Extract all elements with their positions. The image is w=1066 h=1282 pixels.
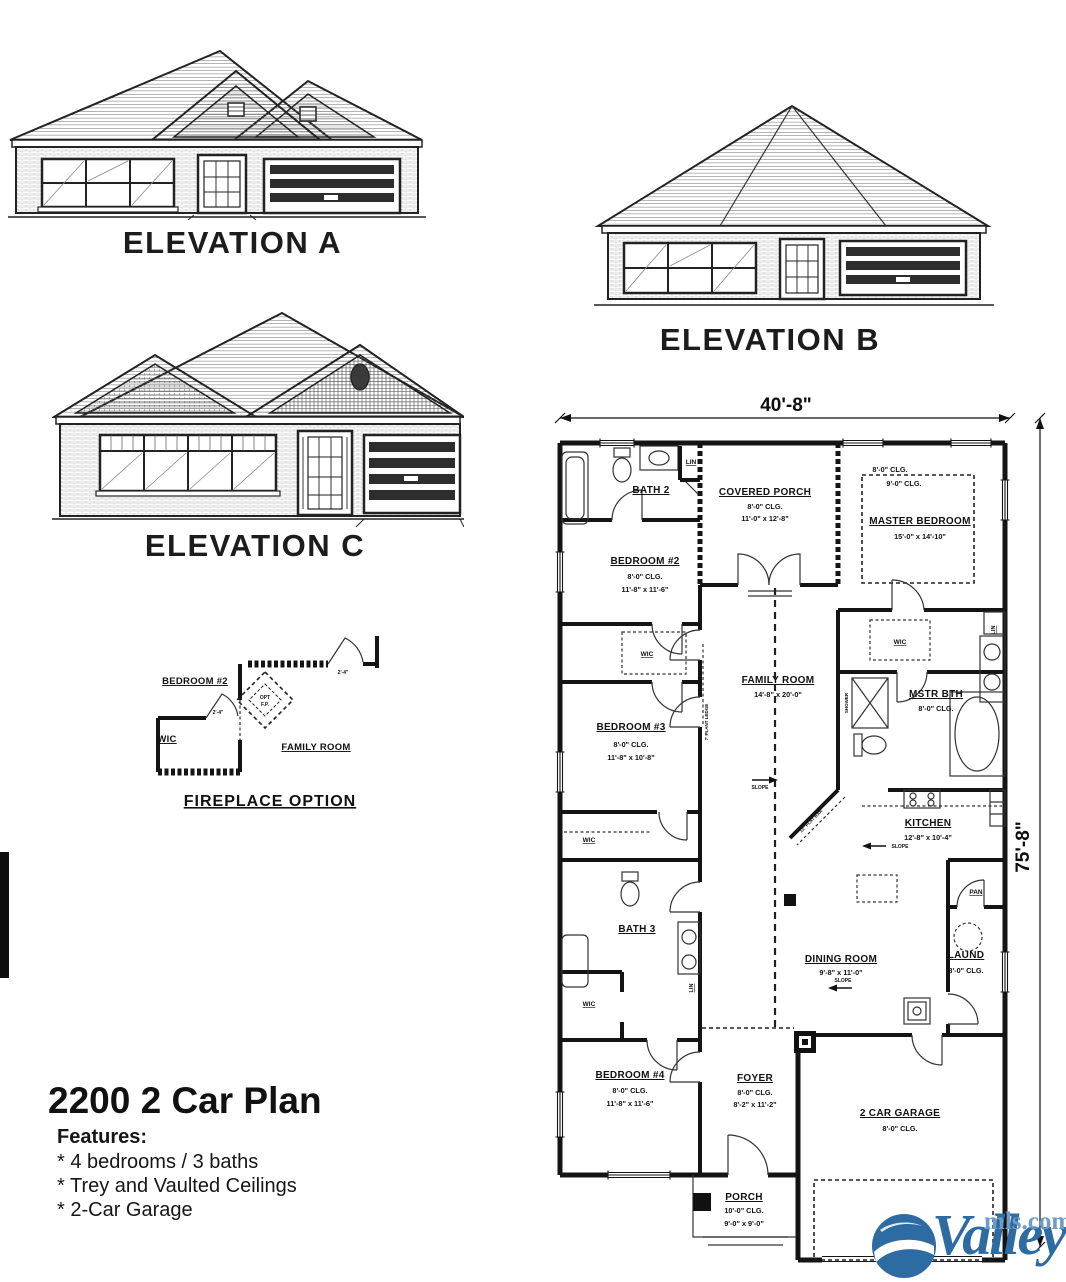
svg-text:2 CAR GARAGE: 2 CAR GARAGE (860, 1108, 940, 1119)
fireplace-option-detail: OPT F.P. 2'-4" 2'-4" BEDROOM #2 WIC FAMI… (148, 622, 383, 817)
shower-label: SHOWER (844, 692, 849, 713)
elevation-a-label: ELEVATION A (100, 225, 365, 261)
window (38, 159, 178, 212)
front-door (198, 155, 246, 213)
svg-text:8'-0" CLG.: 8'-0" CLG. (613, 740, 648, 749)
family-room-label: FAMILY ROOM 14'-8" x 20'-0" (742, 675, 815, 699)
svg-text:FAMILY ROOM: FAMILY ROOM (742, 675, 815, 686)
opt-fp-label-1: OPT (260, 695, 270, 701)
elevation-b-label: ELEVATION B (640, 322, 900, 358)
svg-text:14'-8" x 20'-0": 14'-8" x 20'-0" (754, 690, 802, 699)
svg-text:12'-8" x 10'-4": 12'-8" x 10'-4" (904, 833, 952, 842)
front-door (780, 239, 824, 299)
porch-post (693, 1193, 711, 1211)
feature-item: * 2-Car Garage (57, 1198, 193, 1222)
toilet (854, 734, 886, 756)
garage-door (264, 159, 400, 213)
width-dimension: 40'-8" (555, 395, 1015, 423)
flat-bar-label: 12" FLAT BAR (798, 808, 824, 834)
elevation-b-drawing (594, 100, 994, 310)
bathtub (562, 452, 588, 524)
kitchen-label: KITCHEN 12'-8" x 10'-4" (904, 818, 952, 842)
svg-text:8'-0" CLG.: 8'-0" CLG. (918, 704, 953, 713)
master-bedroom-label: 8'-0" CLG. 9'-0" CLG. MASTER BEDROOM 15'… (869, 465, 970, 541)
svg-text:8'-0" CLG.: 8'-0" CLG. (747, 502, 782, 511)
svg-text:8'-0" CLG.: 8'-0" CLG. (612, 1086, 647, 1095)
wic-label: WIC (583, 837, 596, 844)
svg-text:8'-0" CLG.: 8'-0" CLG. (872, 465, 907, 474)
opt-fireplace-diamond: OPT F.P. (237, 672, 293, 728)
bedroom4-label: BEDROOM #4 8'-0" CLG. 11'-8" x 11'-6" (595, 1070, 664, 1108)
svg-text:BEDROOM #3: BEDROOM #3 (596, 722, 665, 733)
window (1001, 480, 1010, 520)
valley-logo-globe-icon (870, 1212, 938, 1280)
garage-door (840, 241, 966, 295)
svg-text:SLOPE: SLOPE (892, 844, 910, 850)
svg-text:11'-8" x 11'-6": 11'-8" x 11'-6" (622, 585, 669, 594)
wic-label: WIC (641, 651, 654, 658)
garage-door (364, 435, 460, 513)
scan-artifact (0, 852, 9, 978)
window (556, 1092, 565, 1137)
svg-text:15'-0" x 14'-10": 15'-0" x 14'-10" (894, 532, 946, 541)
svg-text:LAUND: LAUND (948, 950, 985, 961)
bathtub (562, 935, 588, 987)
floor-plan-sheet: ELEVATION A (0, 0, 1066, 1282)
shower: SHOWER (844, 678, 888, 728)
fireplace-option-title: FIREPLACE OPTION (184, 793, 356, 810)
lin-label: LIN (991, 626, 997, 635)
lin-label: LIN (689, 984, 695, 993)
window (608, 1171, 670, 1180)
fireplace-wic-label: WIC (157, 734, 176, 745)
toilet (613, 448, 631, 482)
plant-ledge-label: 7' PLANT LEDGE (704, 704, 709, 741)
window (843, 439, 883, 448)
garage-label: 2 CAR GARAGE 8'-0" CLG. (860, 1108, 940, 1133)
svg-text:SLOPE: SLOPE (835, 978, 853, 984)
washer (904, 998, 930, 1024)
garden-tub (950, 692, 1005, 776)
window (1001, 952, 1010, 992)
foyer-label: FOYER 8'-0" CLG. 8'-2" x 11'-2" (733, 1073, 776, 1109)
slope-arrow: SLOPE (862, 843, 909, 851)
sink (640, 446, 678, 470)
laundry-label: LAUND 8'-0" CLG. (948, 950, 985, 975)
range (904, 790, 940, 808)
fireplace-family-room-label: FAMILY ROOM (281, 742, 350, 753)
elevation-c-label: ELEVATION C (115, 528, 395, 564)
fireplace-dim-left: 2'-4" (213, 710, 224, 716)
dining-room-label: DINING ROOM 9'-8" x 11'-0" (805, 954, 877, 977)
main-floor-plan: 40'-8" 75'-8" (552, 392, 1066, 1280)
svg-text:11'-8" x 11'-6": 11'-8" x 11'-6" (607, 1099, 654, 1108)
svg-text:MSTR BTH: MSTR BTH (909, 689, 963, 700)
svg-text:8'-0" CLG.: 8'-0" CLG. (882, 1124, 917, 1133)
front-door (298, 431, 352, 515)
wall-cap (784, 894, 796, 906)
window (556, 752, 565, 792)
elevation-a-drawing (8, 45, 426, 220)
lin-label: LIN (686, 459, 697, 466)
svg-text:COVERED PORCH: COVERED PORCH (719, 487, 811, 498)
bedroom2-label: BEDROOM #2 8'-0" CLG. 11'-8" x 11'-6" (610, 556, 679, 594)
fireplace-bedroom2-label: BEDROOM #2 (162, 676, 228, 687)
fireplace-dim-right: 2'-4" (338, 670, 349, 676)
svg-text:DINING ROOM: DINING ROOM (805, 954, 877, 965)
bedroom3-label: BEDROOM #3 8'-0" CLG. 11'-8" x 10'-8" (596, 722, 665, 762)
elevation-c-drawing (52, 305, 464, 527)
window (600, 439, 634, 448)
wic-label: WIC (583, 1001, 596, 1008)
mls-com-text: mls.com (984, 1208, 1066, 1236)
slope-arrow: SLOPE (828, 978, 852, 992)
svg-text:10'-0" CLG.: 10'-0" CLG. (724, 1206, 763, 1215)
mstr-bth-label: MSTR BTH 8'-0" CLG. (909, 689, 963, 713)
svg-text:11'-8" x 10'-8": 11'-8" x 10'-8" (607, 753, 654, 762)
double-vanity (678, 922, 700, 974)
window (951, 439, 991, 448)
height-dimension: 75'-8" (1013, 413, 1045, 1252)
feature-item: * Trey and Vaulted Ceilings (57, 1174, 297, 1198)
plan-title: 2200 2 Car Plan (48, 1080, 322, 1122)
svg-text:BEDROOM #2: BEDROOM #2 (610, 556, 679, 567)
porch-label: PORCH 10'-0" CLG. 9'-0" x 9'-0" (724, 1192, 764, 1228)
svg-text:KITCHEN: KITCHEN (905, 818, 952, 829)
height-dimension-text: 75'-8" (1013, 821, 1034, 873)
toilet (621, 872, 639, 906)
svg-text:9'-8" x 11'-0": 9'-8" x 11'-0" (819, 968, 862, 977)
window (96, 435, 280, 496)
svg-text:8'-0" CLG.: 8'-0" CLG. (737, 1088, 772, 1097)
features-heading: Features: (57, 1126, 147, 1149)
trey-ceiling-dashed (862, 475, 974, 583)
svg-text:PORCH: PORCH (725, 1192, 763, 1203)
window (556, 552, 565, 592)
svg-text:8'-0" CLG.: 8'-0" CLG. (948, 966, 983, 975)
opt-fp-label-2: F.P. (261, 702, 270, 708)
wic-label: WIC (894, 639, 907, 646)
svg-text:11'-0" x 12'-8": 11'-0" x 12'-8" (741, 514, 788, 523)
bath3-label: BATH 3 (618, 924, 655, 935)
svg-text:MASTER BEDROOM: MASTER BEDROOM (869, 516, 970, 527)
bath2-label: BATH 2 (632, 485, 669, 496)
window (624, 243, 756, 293)
column (794, 1031, 816, 1053)
svg-text:8'-0" CLG.: 8'-0" CLG. (627, 572, 662, 581)
pan-label: PAN (969, 889, 983, 896)
svg-text:FOYER: FOYER (737, 1073, 773, 1084)
valley-mls-logo: Valley mls.com (868, 1200, 1066, 1282)
svg-text:SLOPE: SLOPE (752, 785, 770, 791)
svg-text:8'-2" x 11'-2": 8'-2" x 11'-2" (733, 1100, 776, 1109)
covered-porch-label: COVERED PORCH 8'-0" CLG. 11'-0" x 12'-8" (719, 487, 811, 523)
svg-text:9'-0" CLG.: 9'-0" CLG. (886, 479, 921, 488)
svg-text:BEDROOM #4: BEDROOM #4 (595, 1070, 664, 1081)
feature-item: * 4 bedrooms / 3 baths (57, 1150, 258, 1174)
width-dimension-text: 40'-8" (760, 395, 812, 416)
svg-text:9'-0" x 9'-0": 9'-0" x 9'-0" (724, 1219, 764, 1228)
